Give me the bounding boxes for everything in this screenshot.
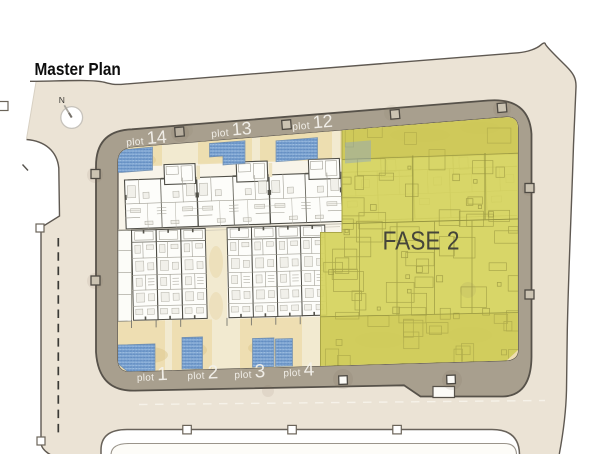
svg-text:FASE 2: FASE 2	[383, 228, 460, 256]
svg-text:N: N	[59, 95, 65, 105]
svg-text:Master Plan: Master Plan	[35, 59, 121, 79]
